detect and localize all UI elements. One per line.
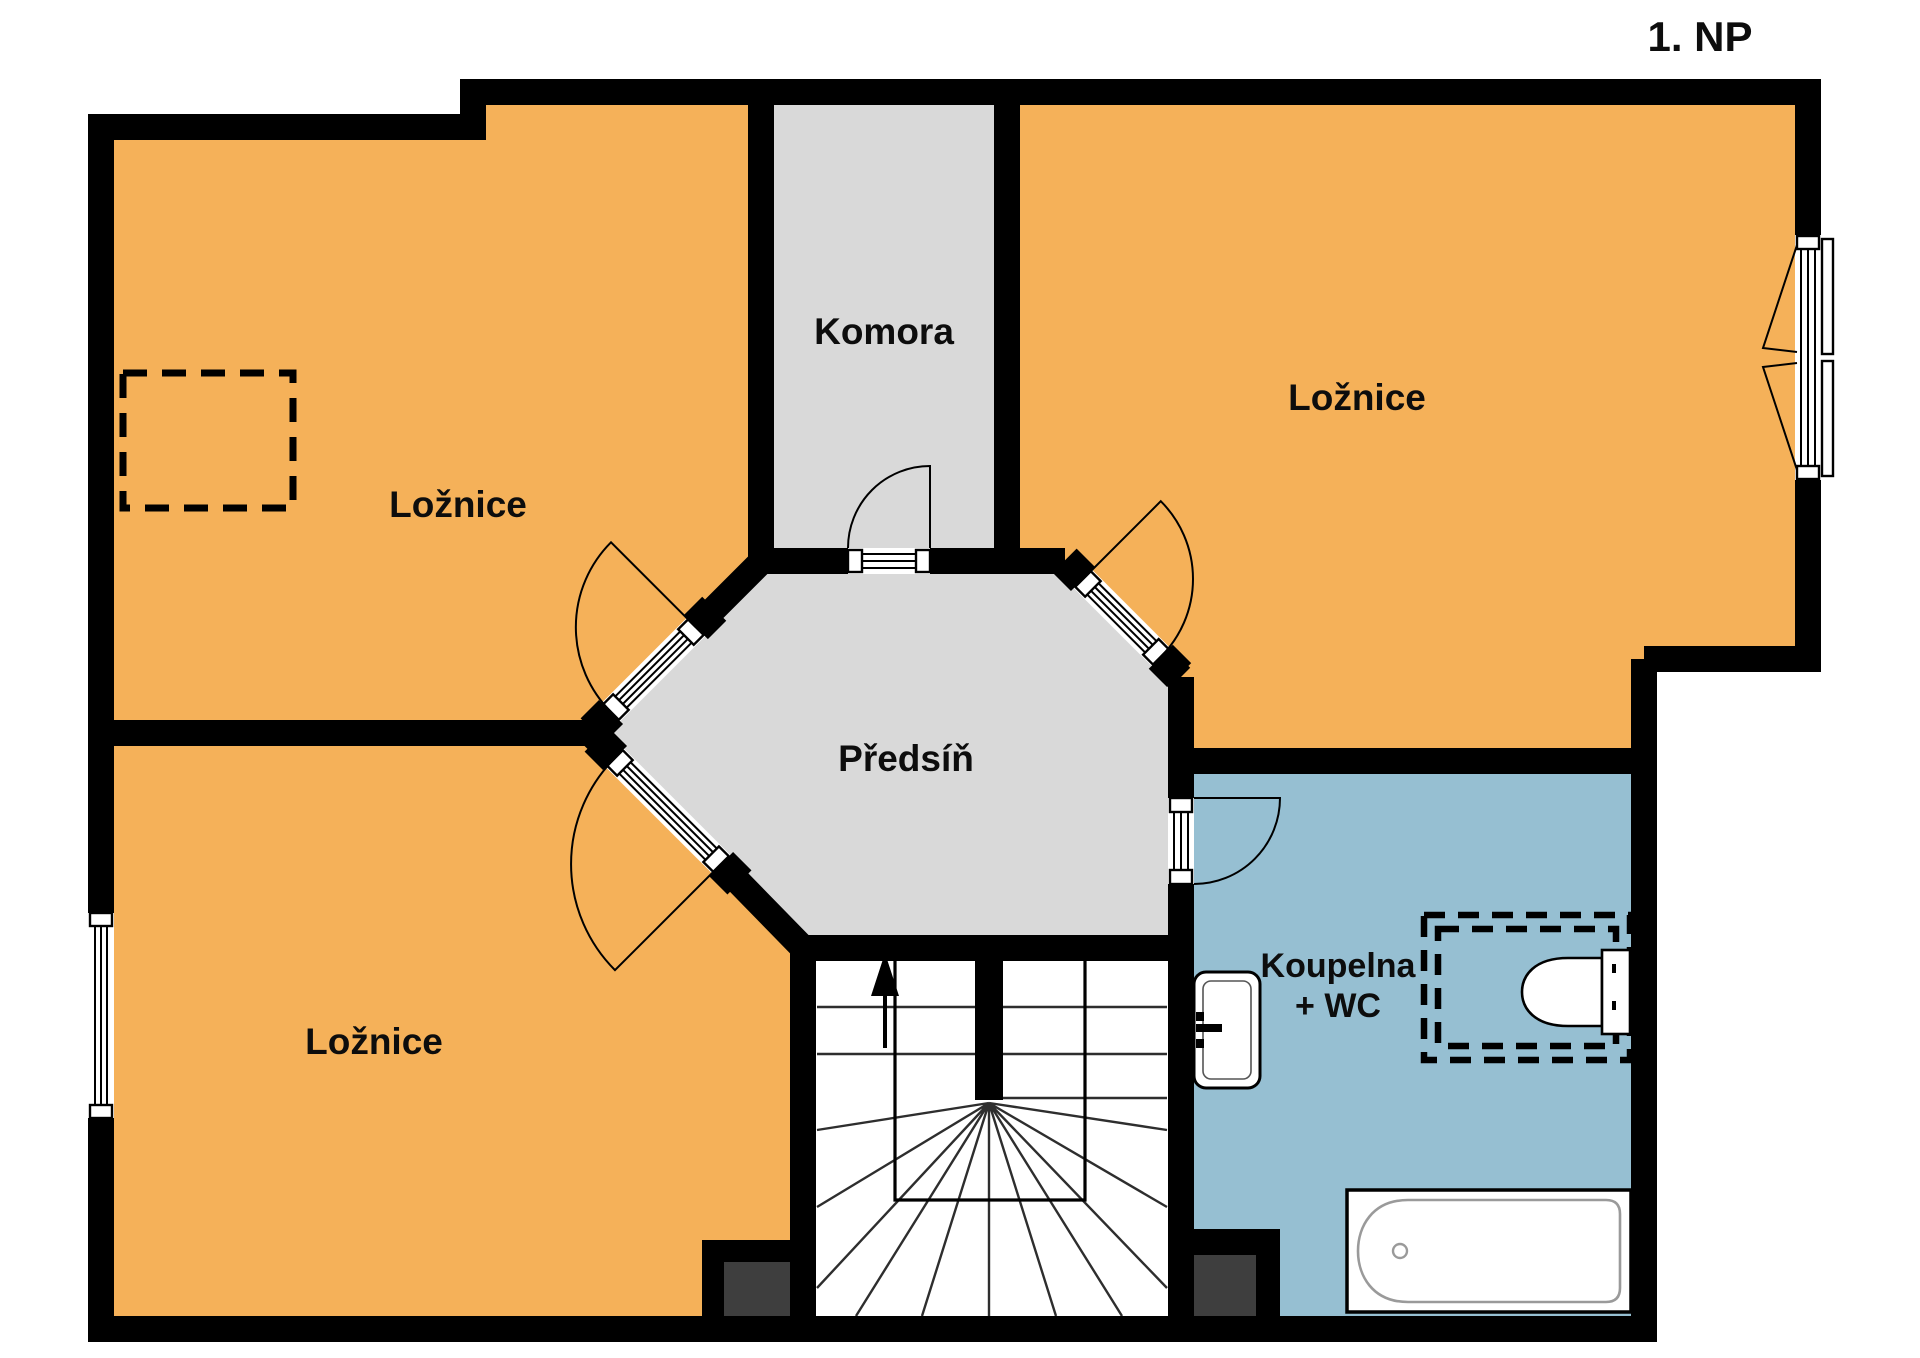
floor-plan: 1. NP Ložnice Komora Ložnice Předsíň Lož… <box>0 0 1920 1358</box>
room-bedroom-top-left <box>101 92 761 733</box>
label-bathroom-line1: Koupelna <box>1261 947 1417 985</box>
page-title: 1. NP <box>1647 13 1752 60</box>
label-bedroom-top-right: Ložnice <box>1288 377 1426 418</box>
label-storage: Komora <box>814 311 954 352</box>
window-bedroom-bottom-left <box>88 913 114 1118</box>
label-bathroom-line2: + WC <box>1295 987 1381 1025</box>
sink <box>1194 972 1260 1088</box>
floor-plan-page: 1. NP Ložnice Komora Ložnice Předsíň Lož… <box>0 0 1920 1358</box>
label-bedroom-top-left: Ložnice <box>389 484 527 525</box>
label-hallway: Předsíň <box>838 738 974 779</box>
chimney-right <box>1194 1229 1280 1316</box>
label-bedroom-bottom-left: Ložnice <box>305 1021 443 1062</box>
bathtub <box>1347 1190 1631 1312</box>
chimney-left <box>702 1240 790 1316</box>
